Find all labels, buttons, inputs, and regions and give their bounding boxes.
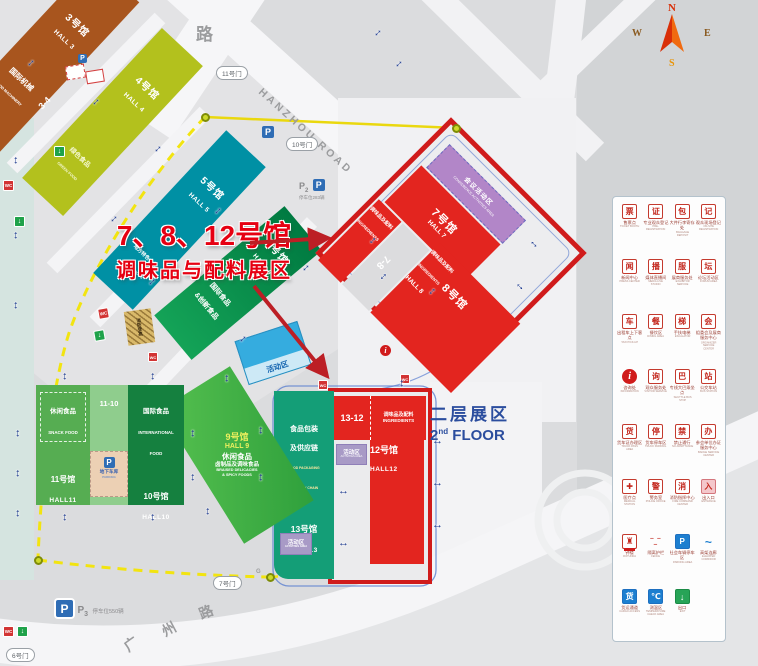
legend-item: 梯手扶电梯ESCALATOR — [670, 314, 695, 367]
legend-label-en: EXHIBITOR SERVICE — [671, 281, 694, 287]
legend-elevated-corridor-icon: ~ — [701, 534, 716, 549]
legend-label-en: POLICE OFFICE — [645, 500, 668, 503]
restroom-icon: WC — [318, 380, 328, 390]
connector-11-10: 11-10 P 地下车库 PARKING — [90, 385, 128, 505]
exit-icon: ↓ — [93, 329, 106, 342]
restroom-icon: WC — [148, 352, 158, 362]
direction-arrow-icon: ↔ — [222, 373, 233, 384]
legend-item: 坛论坛活动区FORUM AREA — [696, 259, 721, 312]
legend-label-en: ELEVATED CORRIDOR — [697, 556, 720, 562]
legend-shuttle-bus-stop-icon: 巴 — [675, 369, 690, 384]
event-booth-box — [65, 64, 86, 81]
legend-fire-command-center-icon: 消 — [675, 479, 690, 494]
legend-item: 巴专线大巴乘坐点SHUTTLE BUS STOP — [670, 369, 695, 422]
legend-item: 餐餐饮区DINING AREA — [643, 314, 668, 367]
legend-label-en: PRE-REGISTRATION — [645, 226, 668, 232]
legend-label-en: ESCALATOR — [671, 335, 694, 338]
legend-item: ✚医疗点MEDICAL STATION — [617, 479, 642, 532]
legend-press-center-icon: 闻 — [622, 259, 637, 274]
legend-label-en: TRUCK PASS AREA — [618, 446, 641, 452]
activity-area-12: 活动区 ACTIVITIES AREA — [336, 444, 367, 465]
route-node — [452, 124, 461, 133]
legend-label-en: TRUCK PARKING — [645, 445, 668, 448]
legend-item: 询观众服务处VISITOR SERVICE — [643, 369, 668, 422]
legend-item: P社会车辆停车区PARKING AREA — [670, 534, 695, 587]
legend-pre-registration-icon: 证 — [648, 204, 663, 219]
route-node — [266, 573, 275, 582]
legend-fence-icon: ‒ ‒ ‒ — [648, 534, 663, 549]
legend-media-live-studio-icon: 播 — [648, 259, 663, 274]
legend-truck-pass-area-icon: 货 — [622, 424, 637, 439]
direction-arrow-icon: ↔ — [338, 486, 349, 497]
legend-forum-area-icon: 坛 — [701, 259, 716, 274]
legend-label-en: VISITOR SERVICE — [645, 390, 668, 393]
direction-arrow-icon: ↔ — [13, 428, 24, 439]
activity-area-13: 活动区 ACTIVITIES AREA — [280, 533, 312, 555]
legend-cargo-access-icon: 货 — [622, 589, 637, 604]
legend-item: 票售票点TICKET BOOTH — [617, 204, 642, 257]
underground-parking-box: P 地下车库 PARKING — [90, 451, 128, 497]
legend-item: ↓出口EXIT — [670, 589, 695, 642]
legend-ticket-booth-icon: 票 — [622, 204, 637, 219]
legend-police-office-icon: 警 — [648, 479, 663, 494]
g-mark: G — [256, 569, 261, 575]
legend-item: 服展商服务处EXHIBITOR SERVICE — [670, 259, 695, 312]
direction-arrow-icon: ↔ — [13, 468, 24, 479]
legend-item: 播媒体直播间MEDIA LIVE STUDIO — [643, 259, 668, 312]
gate-6: 6号门 — [6, 648, 35, 662]
direction-arrow-icon: ↔ — [432, 478, 443, 489]
compass: N W E S — [628, 2, 716, 74]
legend-information-icon: i — [622, 369, 637, 384]
legend-item: 包大件行李寄存处BAGGAGE DEPOSIT — [670, 204, 695, 257]
legend-label-en: ON-SITE REGISTRATION — [697, 226, 720, 232]
direction-arrow-icon: ↔ — [148, 371, 159, 382]
legend-label-en: BADGE SERVICE CENTER — [697, 451, 720, 457]
legend-label-en: TAXI PICK-UP — [618, 341, 641, 344]
legend-item: 警警务室POLICE OFFICE — [643, 479, 668, 532]
legend-label-en: ROTUNDA — [618, 555, 641, 558]
legend-on-site-registration-icon: 记 — [701, 204, 716, 219]
legend-label-zh: 社会车辆停车区 — [670, 550, 695, 561]
gate-7: 7号门 — [213, 576, 242, 590]
compass-n: N — [668, 2, 676, 14]
direction-arrow-icon: ↔ — [256, 472, 267, 483]
hall-3-label: 3号馆 HALL 3 — [48, 8, 94, 54]
legend-item: 货货车证办理区TRUCK PASS AREA — [617, 424, 642, 477]
legend-no-admittance-icon: 禁 — [675, 424, 690, 439]
direction-arrow-icon: ↔ — [188, 472, 199, 483]
route-node — [34, 556, 43, 565]
hall-12-top-band: 13-12 调味品及配料 INGREDIENTS — [334, 396, 426, 440]
legend-label-zh: 出租车上下客点 — [617, 330, 642, 341]
exit-icon: ↓ — [14, 216, 25, 227]
hall-10: 国际食品 INTERNATIONAL FOOD 10号馆 HALL10 — [128, 385, 184, 505]
map-title-line1: 7、8、12号馆 — [58, 214, 350, 254]
legend-item: 货货运通道CARGO ACCESS — [617, 589, 642, 642]
exit-icon: ↓ — [17, 626, 28, 637]
legend-item: 闻新闻中心PRESS CENTER — [617, 259, 642, 312]
legend-escalator-icon: 梯 — [675, 314, 690, 329]
parking-icon: P — [78, 54, 87, 63]
legend-label-en: TICKET BOOTH — [618, 225, 641, 228]
legend-medical-station-icon: ✚ — [622, 479, 637, 494]
legend-label-en: PRESS CENTER — [618, 280, 641, 283]
legend-item: 消消防指挥中心FIRE COMMAND CENTER — [670, 479, 695, 532]
legend-label-zh: 组委会及展商服务中心 — [696, 330, 721, 341]
legend-bus-station-icon: 站 — [701, 369, 716, 384]
legend-item: ‒ ‒ ‒隔离护栏FENCE — [643, 534, 668, 587]
legend-label-en: DINING AREA — [645, 335, 668, 338]
fire-ladder-area: 消防登高 — [124, 308, 155, 345]
direction-arrow-icon: ↔ — [11, 300, 22, 311]
legend-badge-service-center-icon: 办 — [701, 424, 716, 439]
legend-item: 车出租车上下客点TAXI PICK-UP — [617, 314, 642, 367]
legend-exhibitor-service-icon: 服 — [675, 259, 690, 274]
legend-temperature-check-area-icon: ℃ — [648, 589, 663, 604]
legend-item: 证专业观众登记PRE-REGISTRATION — [643, 204, 668, 257]
parking-icon: P — [104, 457, 115, 468]
event-booth-box — [85, 69, 105, 85]
legend-item: ~高架连廊ELEVATED CORRIDOR — [696, 534, 721, 587]
legend-label-en: FORUM AREA — [697, 280, 720, 283]
legend-item: 会组委会及展商服务中心ORGANIZER SERVICE CENTER — [696, 314, 721, 367]
road-label-top: 路 — [196, 20, 213, 45]
direction-arrow-icon: ↔ — [338, 538, 349, 549]
legend-exit-icon: ↓ — [675, 589, 690, 604]
legend-item: 办参会单位办证服务中心BADGE SERVICE CENTER — [696, 424, 721, 477]
gate-11: 11号门 — [216, 66, 248, 80]
legend-rotunda-icon: ♜ — [622, 534, 637, 549]
info-icon: i — [380, 345, 391, 356]
direction-arrow-icon: ↔ — [203, 506, 214, 517]
legend-label-en: INFORMATION — [618, 390, 641, 393]
legend-entrance-icon: 入 — [701, 479, 716, 494]
legend-label-en: BAGGAGE DEPOSIT — [671, 231, 694, 237]
parking-icon: P — [56, 600, 73, 617]
hall-4-label: 4号馆 HALL 4 — [118, 71, 164, 117]
legend-label-en: MEDICAL STATION — [618, 501, 641, 507]
legend-dining-area-icon: 餐 — [648, 314, 663, 329]
restroom-icon: WC — [3, 180, 14, 191]
compass-w: W — [632, 28, 642, 39]
legend-label-en: PARKING AREA — [671, 561, 694, 564]
gate-10: 10号门 — [286, 137, 318, 151]
compass-s: S — [669, 58, 675, 69]
direction-arrow-icon: ↔ — [188, 428, 199, 439]
direction-arrow-icon: ↔ — [432, 436, 443, 447]
legend-label-en: FENCE — [645, 555, 668, 558]
direction-arrow-icon: ↔ — [60, 512, 71, 523]
legend-item: 停货车停车区TRUCK PARKING — [643, 424, 668, 477]
route-node — [201, 113, 210, 122]
expo-floor-map: 3号馆 HALL 3 国际机械 FOOD MACHINERY 4号馆 HALL … — [0, 0, 758, 666]
legend-label-en: ORGANIZER SERVICE CENTER — [697, 341, 720, 350]
legend-baggage-deposit-icon: 包 — [675, 204, 690, 219]
legend-label-en: SHUTTLE BUS STOP — [671, 396, 694, 402]
legend-label-zh: 大件行李寄存处 — [670, 220, 695, 231]
legend-label-zh: 专线大巴乘坐点 — [670, 385, 695, 396]
legend-label-en: TEMPERATURE CHECK AREA — [645, 611, 668, 617]
hall-12: 12号馆 HALL12 — [370, 440, 424, 564]
exit-icon: ↓ — [54, 146, 65, 157]
direction-arrow-icon: ↔ — [256, 425, 267, 436]
legend-label-zh: 参会单位办证服务中心 — [696, 440, 721, 451]
legend-item: ♜钟楼ROTUNDA — [617, 534, 642, 587]
restroom-icon: WC — [97, 307, 110, 320]
parking-icon: P — [313, 179, 325, 191]
legend-item: ℃测温区TEMPERATURE CHECK AREA — [643, 589, 668, 642]
legend-label-en: CARGO ACCESS — [618, 610, 641, 613]
legend-label-en: FIRE COMMAND CENTER — [671, 501, 694, 507]
direction-arrow-icon: ↔ — [148, 512, 159, 523]
parking-icon: P — [262, 126, 274, 138]
legend-item: 站公交车站BUS STATION — [696, 369, 721, 422]
legend-organizer-service-center-icon: 会 — [701, 314, 716, 329]
legend-item: 入出入口ENTRANCE — [696, 479, 721, 532]
legend-label-en: ENTRANCE — [697, 500, 720, 503]
legend-item: 禁禁止通行NO ADMITTANCE — [670, 424, 695, 477]
legend-taxi-pick-up-icon: 车 — [622, 314, 637, 329]
legend-panel: 票售票点TICKET BOOTH证专业观众登记PRE-REGISTRATION包… — [612, 196, 726, 642]
legend-label-en: BUS STATION — [697, 390, 720, 393]
connector-13-12: 13-12 — [340, 413, 363, 423]
legend-label-en: NO ADMITTANCE — [671, 445, 694, 448]
parking-p2: P2 P 停车位283辆 — [299, 176, 325, 201]
parking-p3: P P3 停车位550辆 — [56, 600, 124, 618]
direction-arrow-icon: ↔ — [432, 520, 443, 531]
direction-arrow-icon: ↔ — [13, 508, 24, 519]
legend-label-en: EXIT — [671, 610, 694, 613]
legend-item: i咨询处INFORMATION — [617, 369, 642, 422]
hall-11: 休闲食品 SNACK FOOD 11号馆 HALL11 — [36, 385, 90, 505]
compass-e: E — [704, 28, 711, 39]
legend-visitor-service-icon: 询 — [648, 369, 663, 384]
legend-parking-area-icon: P — [675, 534, 690, 549]
direction-arrow-icon: ↔ — [397, 378, 408, 389]
hall-3-zone-label: 国际机械 FOOD MACHINERY — [0, 60, 41, 111]
legend-truck-parking-icon: 停 — [648, 424, 663, 439]
zone-hall-12: 13-12 调味品及配料 INGREDIENTS 活动区 ACTIVITIES … — [328, 388, 432, 584]
restroom-icon: WC — [3, 626, 14, 637]
direction-arrow-icon: ↔ — [60, 371, 71, 382]
legend-item: 记观众现场登记ON-SITE REGISTRATION — [696, 204, 721, 257]
direction-arrow-icon: ↔ — [11, 155, 22, 166]
direction-arrow-icon: ↔ — [11, 230, 22, 241]
legend-label-en: MEDIA LIVE STUDIO — [645, 281, 668, 287]
